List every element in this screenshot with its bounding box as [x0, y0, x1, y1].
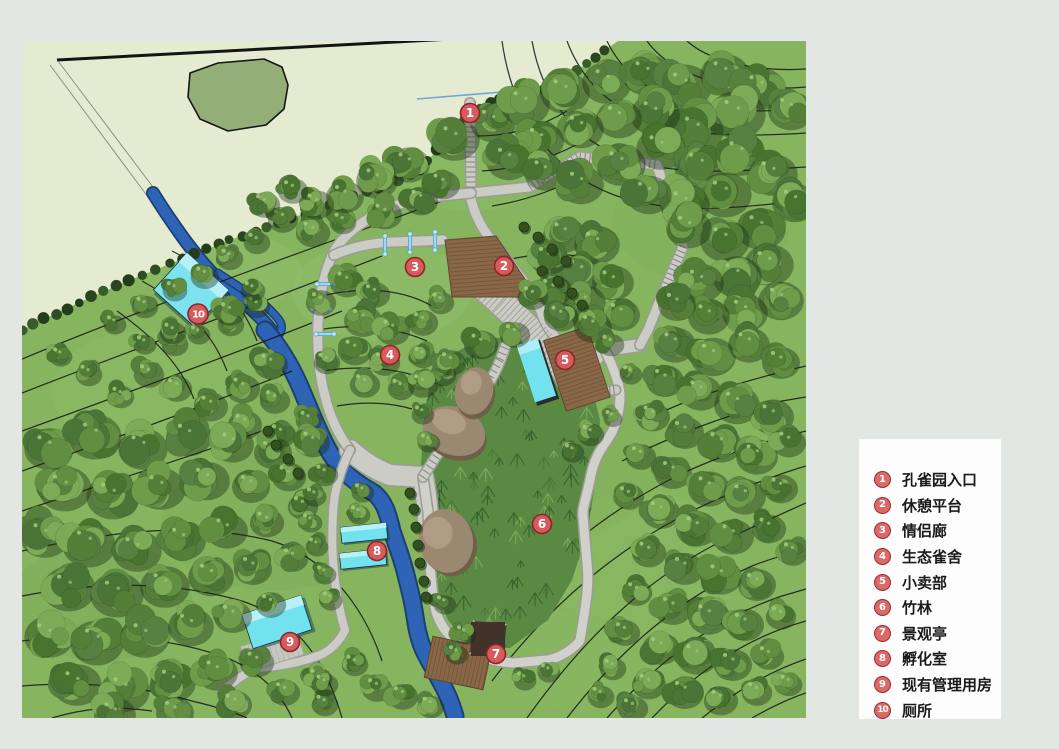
legend-item: 9现有管理用房 — [874, 672, 995, 698]
map-marker-2: 2 — [495, 257, 514, 276]
legend-item-marker: 10 — [874, 702, 891, 719]
legend-item-label: 竹林 — [902, 597, 932, 618]
map-marker-number: 6 — [538, 517, 546, 531]
map-marker-10: 10 — [188, 304, 208, 324]
map-marker-number: 1 — [466, 106, 474, 120]
map-marker-7: 7 — [487, 645, 506, 664]
map-marker-3: 3 — [406, 258, 425, 277]
legend-item-marker: 5 — [874, 574, 891, 591]
legend-item-marker: 7 — [874, 625, 891, 642]
legend-item-label: 情侣廊 — [902, 520, 947, 541]
legend-item-marker: 4 — [874, 548, 891, 565]
legend-item-marker: 8 — [874, 650, 891, 667]
map-marker-number: 8 — [373, 544, 381, 558]
map-marker-number: 9 — [286, 635, 294, 649]
legend-item-label: 现有管理用房 — [902, 674, 992, 695]
legend-item-label: 孔雀园入口 — [902, 469, 977, 490]
map-marker-number: 5 — [561, 353, 569, 367]
legend-item: 8孵化室 — [874, 646, 995, 672]
map-marker-number: 3 — [411, 260, 419, 274]
legend-item-label: 小卖部 — [902, 572, 947, 593]
legend-panel: 1孔雀园入口2休憩平台3情侣廊4生态雀舍5小卖部6竹林7景观亭8孵化室9现有管理… — [859, 439, 1001, 719]
legend-item: 4生态雀舍 — [874, 544, 995, 570]
legend-item: 5小卖部 — [874, 569, 995, 595]
page: 12345678910 1孔雀园入口2休憩平台3情侣廊4生态雀舍5小卖部6竹林7… — [0, 0, 1059, 749]
map-marker-6: 6 — [533, 515, 552, 534]
legend-item: 3情侣廊 — [874, 518, 995, 544]
legend-item: 7景观亭 — [874, 621, 995, 647]
legend-item-label: 厕所 — [902, 700, 932, 721]
map-marker-number: 7 — [492, 647, 500, 661]
site-plan-map: 12345678910 — [22, 41, 806, 718]
legend-item: 2休憩平台 — [874, 493, 995, 519]
map-marker-4: 4 — [381, 346, 400, 365]
legend-item-label: 景观亭 — [902, 623, 947, 644]
legend-item-marker: 1 — [874, 471, 891, 488]
map-marker-8: 8 — [368, 542, 387, 561]
map-marker-1: 1 — [461, 104, 480, 123]
legend-item-marker: 6 — [874, 599, 891, 616]
legend-item: 10厕所 — [874, 697, 995, 723]
map-marker-5: 5 — [556, 351, 575, 370]
legend-item: 6竹林 — [874, 595, 995, 621]
legend-item-label: 休憩平台 — [902, 495, 962, 516]
legend-item-label: 孵化室 — [902, 648, 947, 669]
site-plan-svg: 12345678910 — [22, 41, 806, 718]
legend-item: 1孔雀园入口 — [874, 467, 995, 493]
legend-item-marker: 3 — [874, 522, 891, 539]
legend-item-label: 生态雀舍 — [902, 546, 962, 567]
map-marker-number: 4 — [386, 348, 394, 362]
map-marker-number: 10 — [192, 309, 205, 320]
legend-item-marker: 2 — [874, 497, 891, 514]
map-marker-number: 2 — [500, 259, 508, 273]
map-marker-9: 9 — [281, 633, 300, 652]
legend-item-marker: 9 — [874, 676, 891, 693]
